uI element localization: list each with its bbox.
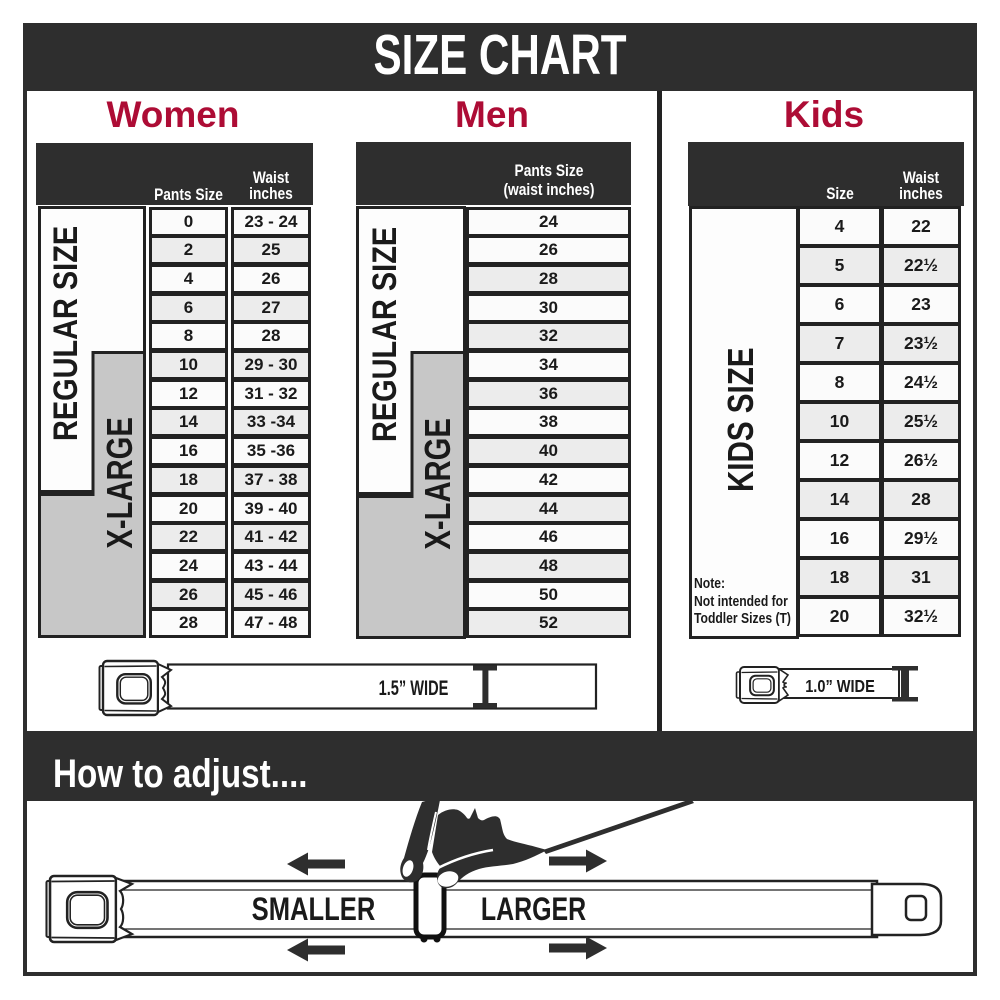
svg-text:1.5” WIDE: 1.5” WIDE (379, 675, 449, 700)
svg-text:LARGER: LARGER (481, 892, 587, 928)
svg-text:1.0” WIDE: 1.0” WIDE (805, 677, 875, 697)
svg-text:SMALLER: SMALLER (252, 892, 376, 927)
